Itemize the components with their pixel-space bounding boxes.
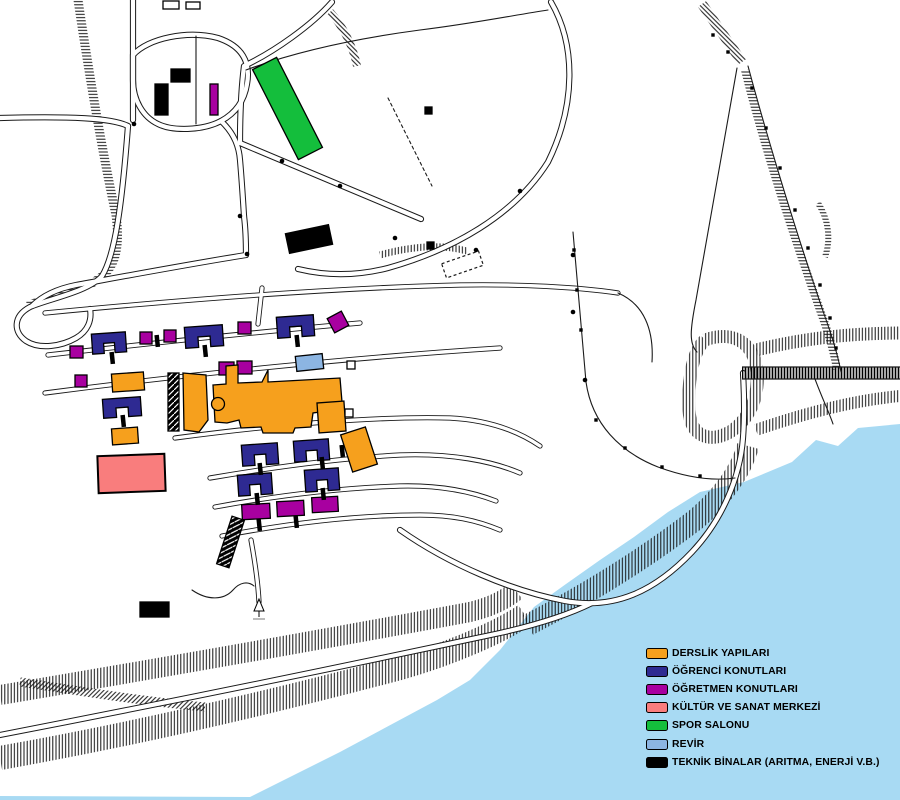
building-ogretmen	[327, 311, 349, 333]
fence-post	[778, 166, 781, 169]
fence-post	[575, 288, 578, 291]
fence-post	[711, 33, 714, 36]
building-ogretmen	[140, 332, 152, 344]
legend-swatch-revir	[646, 739, 668, 750]
legend-item-derslik: DERSLİK YAPILARI	[646, 644, 880, 662]
legend-label-revir: REVİR	[672, 739, 704, 750]
building-ogretmen	[237, 361, 252, 374]
building-entrance-post	[202, 345, 208, 357]
junction-dot	[518, 189, 523, 194]
building-derslik	[212, 398, 225, 411]
junction-dot	[474, 248, 479, 253]
building-teknik	[168, 373, 179, 431]
fence-post	[750, 86, 753, 89]
legend-swatch-kultur	[646, 702, 668, 713]
junction-dot	[338, 184, 343, 189]
legend-swatch-derslik	[646, 648, 668, 659]
fence-post	[828, 316, 831, 319]
building-teknik	[285, 225, 332, 254]
junction-dot	[245, 252, 250, 257]
building-teknik	[217, 516, 245, 568]
legend-swatch-ogrenci	[646, 666, 668, 677]
legend-label-derslik: DERSLİK YAPILARI	[672, 648, 769, 659]
building-ogrenci	[276, 315, 314, 339]
building-derslik	[111, 372, 144, 392]
building-ogrenci	[293, 439, 329, 462]
building-revir	[295, 354, 323, 372]
junction-dot	[393, 236, 398, 241]
building-teknik	[171, 69, 190, 82]
building-kultur	[97, 454, 165, 493]
fence-post	[623, 446, 626, 449]
building-derslik	[341, 427, 378, 472]
junction-dot	[583, 378, 588, 383]
fence-post	[793, 208, 796, 211]
building-ogretmen	[242, 503, 271, 519]
fence-post	[726, 50, 729, 53]
fence-post	[579, 328, 582, 331]
building-teknik	[155, 84, 168, 115]
legend-item-kultur: KÜLTÜR VE SANAT MERKEZİ	[646, 699, 880, 717]
dashed-structure-outline	[442, 251, 484, 278]
building-derslik	[317, 401, 346, 433]
building-outline	[186, 2, 200, 9]
junction-dot	[571, 253, 576, 258]
legend-item-ogretmen: ÖĞRETMEN KONUTLARI	[646, 680, 880, 698]
building-teknik	[427, 242, 434, 249]
building-ogretmen	[164, 330, 176, 342]
building-ogretmen	[70, 346, 83, 358]
legend-label-kultur: KÜLTÜR VE SANAT MERKEZİ	[672, 702, 821, 713]
junction-dot	[238, 214, 243, 219]
building-teknik	[140, 602, 169, 617]
building-derslik	[111, 427, 138, 445]
building-ogretmen	[238, 322, 251, 334]
legend-swatch-teknik	[646, 757, 668, 768]
map-legend: DERSLİK YAPILARIÖĞRENCİ KONUTLARIÖĞRETME…	[646, 644, 880, 771]
building-ogrenci	[91, 332, 126, 354]
fence-post	[594, 418, 597, 421]
legend-item-revir: REVİR	[646, 735, 880, 753]
fence-post	[818, 283, 821, 286]
building-spor	[253, 57, 323, 159]
building-ogrenci	[102, 397, 141, 419]
monument-icon	[253, 599, 265, 619]
building-entrance-post	[109, 352, 115, 364]
building-ogrenci	[237, 473, 272, 496]
fence-post	[806, 246, 809, 249]
fence-post	[660, 465, 663, 468]
fence-post	[764, 126, 767, 129]
site-plan-stage: DERSLİK YAPILARIÖĞRENCİ KONUTLARIÖĞRETME…	[0, 0, 900, 800]
building-ogrenci	[184, 325, 223, 349]
junction-dot	[571, 310, 576, 315]
building-ogretmen	[210, 84, 218, 115]
building-entrance-post	[294, 335, 300, 347]
building-outline	[163, 1, 179, 9]
building-outline	[345, 409, 353, 417]
legend-swatch-ogretmen	[646, 684, 668, 695]
legend-item-teknik: TEKNİK BİNALAR (ARITMA, ENERJİ V.B.)	[646, 753, 880, 771]
legend-label-teknik: TEKNİK BİNALAR (ARITMA, ENERJİ V.B.)	[672, 757, 880, 768]
junction-dot	[280, 159, 285, 164]
junction-dot	[132, 122, 137, 127]
legend-item-ogrenci: ÖĞRENCİ KONUTLARI	[646, 662, 880, 680]
building-teknik	[425, 107, 432, 114]
legend-label-ogretmen: ÖĞRETMEN KONUTLARI	[672, 684, 798, 695]
building-ogretmen	[277, 500, 305, 516]
fence-post	[572, 248, 575, 251]
building-entrance-post	[120, 415, 126, 427]
building-derslik	[183, 373, 208, 432]
legend-item-spor: SPOR SALONU	[646, 717, 880, 735]
building-ogrenci	[241, 443, 278, 466]
building-outline	[347, 361, 355, 369]
legend-swatch-spor	[646, 720, 668, 731]
legend-label-spor: SPOR SALONU	[672, 720, 749, 731]
fence-post	[834, 346, 837, 349]
shore-retaining-wall	[742, 367, 900, 379]
legend-label-ogrenci: ÖĞRENCİ KONUTLARI	[672, 666, 786, 677]
building-entrance-post	[254, 493, 260, 505]
building-ogretmen	[75, 375, 87, 387]
buildings-layer	[70, 1, 434, 617]
junction-dots	[132, 108, 588, 383]
fence-post	[698, 474, 701, 477]
